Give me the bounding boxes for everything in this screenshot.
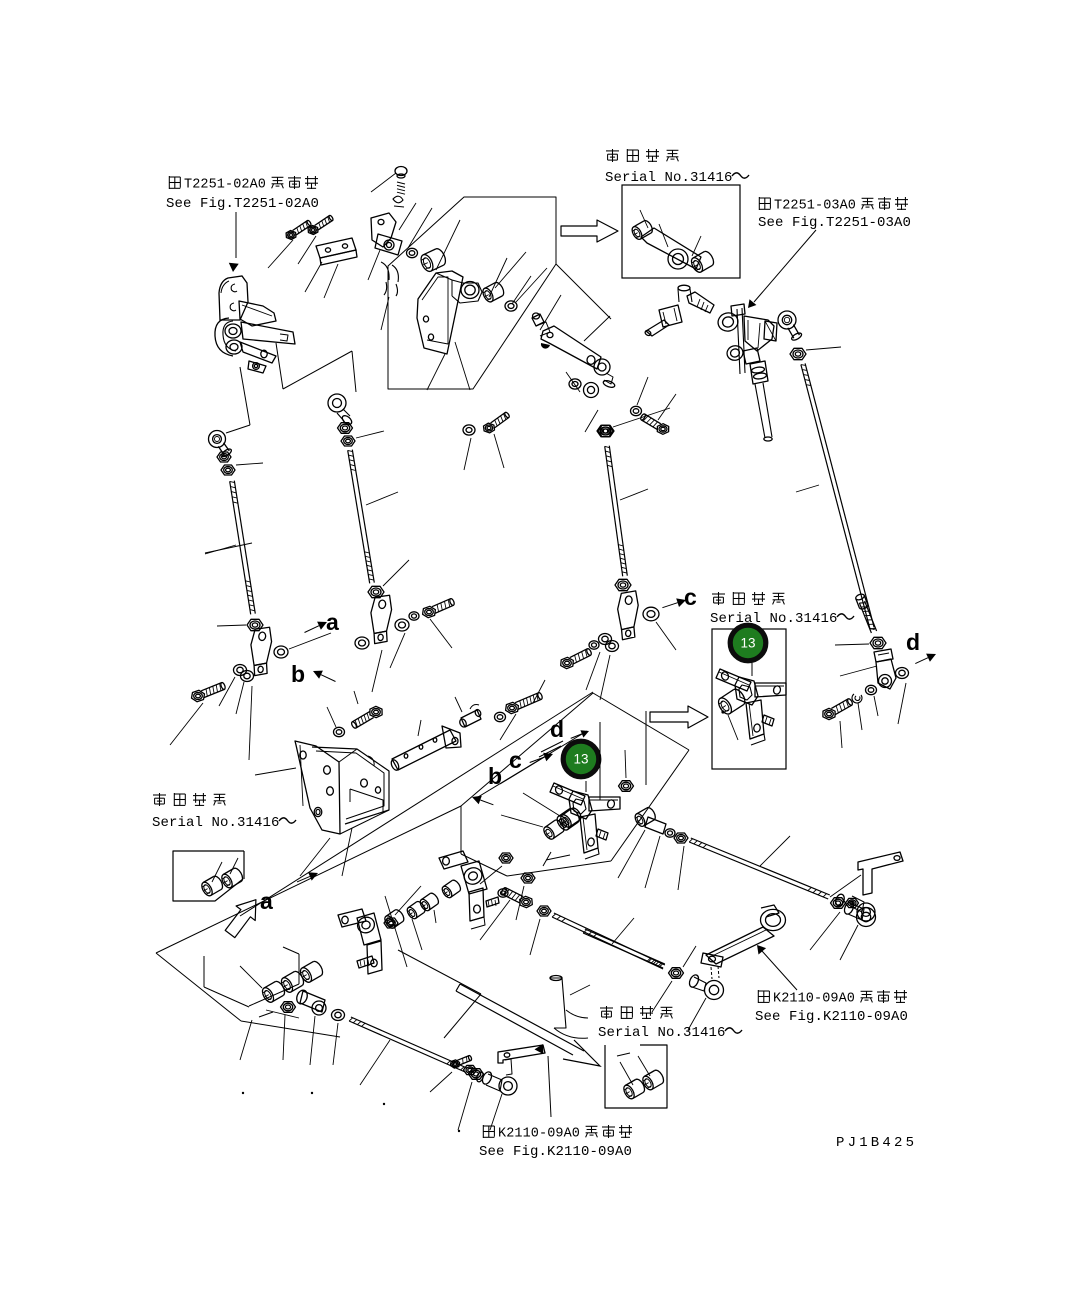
svg-text:a: a — [260, 888, 273, 914]
svg-text:Serial No.31416: Serial No.31416 — [152, 815, 280, 831]
svg-text:T2251-03A0: T2251-03A0 — [774, 199, 856, 214]
svg-text:See Fig.K2110-09A0: See Fig.K2110-09A0 — [479, 1144, 632, 1160]
svg-text:See Fig.K2110-09A0: See Fig.K2110-09A0 — [755, 1009, 908, 1025]
svg-text:13: 13 — [573, 752, 588, 767]
svg-text:b: b — [291, 661, 305, 687]
svg-text:d: d — [906, 629, 920, 655]
svg-text:See Fig.T2251-02A0: See Fig.T2251-02A0 — [166, 196, 319, 212]
svg-text:PJ1B425: PJ1B425 — [836, 1135, 917, 1151]
svg-text:See Fig.T2251-03A0: See Fig.T2251-03A0 — [758, 215, 911, 231]
svg-text:a: a — [326, 609, 339, 635]
svg-text:c: c — [684, 584, 697, 610]
svg-text:Serial No.31416: Serial No.31416 — [598, 1025, 726, 1041]
svg-text:T2251-02A0: T2251-02A0 — [184, 178, 266, 193]
svg-text:Serial No.31416: Serial No.31416 — [710, 611, 838, 627]
svg-text:b: b — [488, 763, 502, 789]
svg-text:K2110-09A0: K2110-09A0 — [773, 992, 855, 1007]
svg-text:K2110-09A0: K2110-09A0 — [498, 1127, 580, 1142]
svg-text:Serial No.31416: Serial No.31416 — [605, 170, 733, 186]
svg-text:13: 13 — [740, 636, 755, 651]
